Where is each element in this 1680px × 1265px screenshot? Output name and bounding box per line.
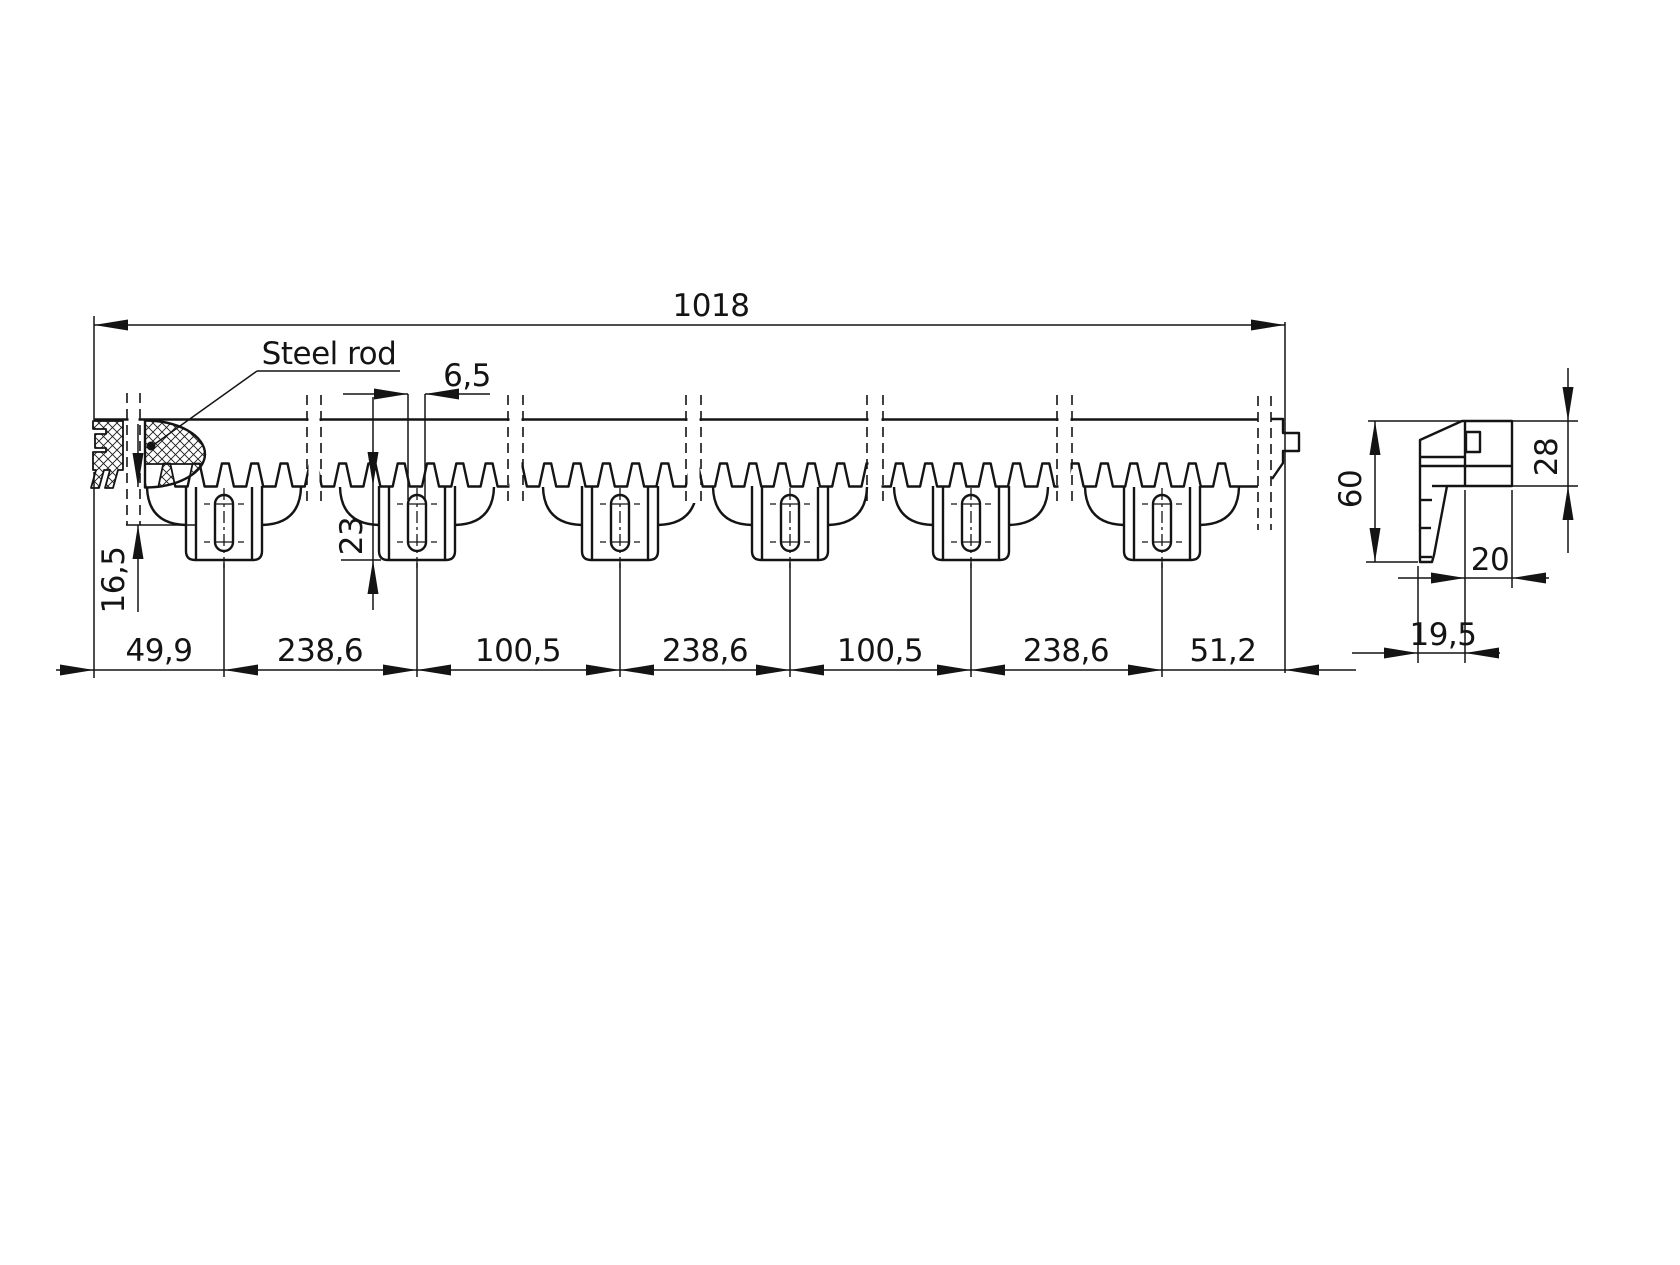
dim-bracket-depth: 23 <box>334 517 370 555</box>
dim-flange-depth: 16,5 <box>96 546 132 613</box>
dim-spacing-5: 100,5 <box>837 633 923 669</box>
drawing-canvas: 1018 Steel rod 6,5 23 16,5 49,9 238,6 10… <box>0 0 1680 1260</box>
dim-spacing-3: 100,5 <box>475 633 561 669</box>
dim-side-height: 60 <box>1333 470 1369 508</box>
dim-side-width: 20 <box>1471 542 1509 578</box>
technical-drawing: 1018 Steel rod 6,5 23 16,5 49,9 238,6 10… <box>0 0 1680 1260</box>
leader-dot <box>147 442 156 451</box>
dim-spacing-4: 238,6 <box>662 633 748 669</box>
dim-side-head-height: 28 <box>1529 438 1565 476</box>
dim-side-foot-offset: 19,5 <box>1409 617 1476 653</box>
dim-spacing-7: 51,2 <box>1189 633 1256 669</box>
dim-slot-width: 6,5 <box>443 358 491 394</box>
dim-spacing-1: 49,9 <box>125 633 192 669</box>
dim-spacing-6: 238,6 <box>1023 633 1109 669</box>
dim-overall-length: 1018 <box>673 288 750 324</box>
steel-rod-label: Steel rod <box>262 336 397 372</box>
dim-spacing-2: 238,6 <box>277 633 363 669</box>
